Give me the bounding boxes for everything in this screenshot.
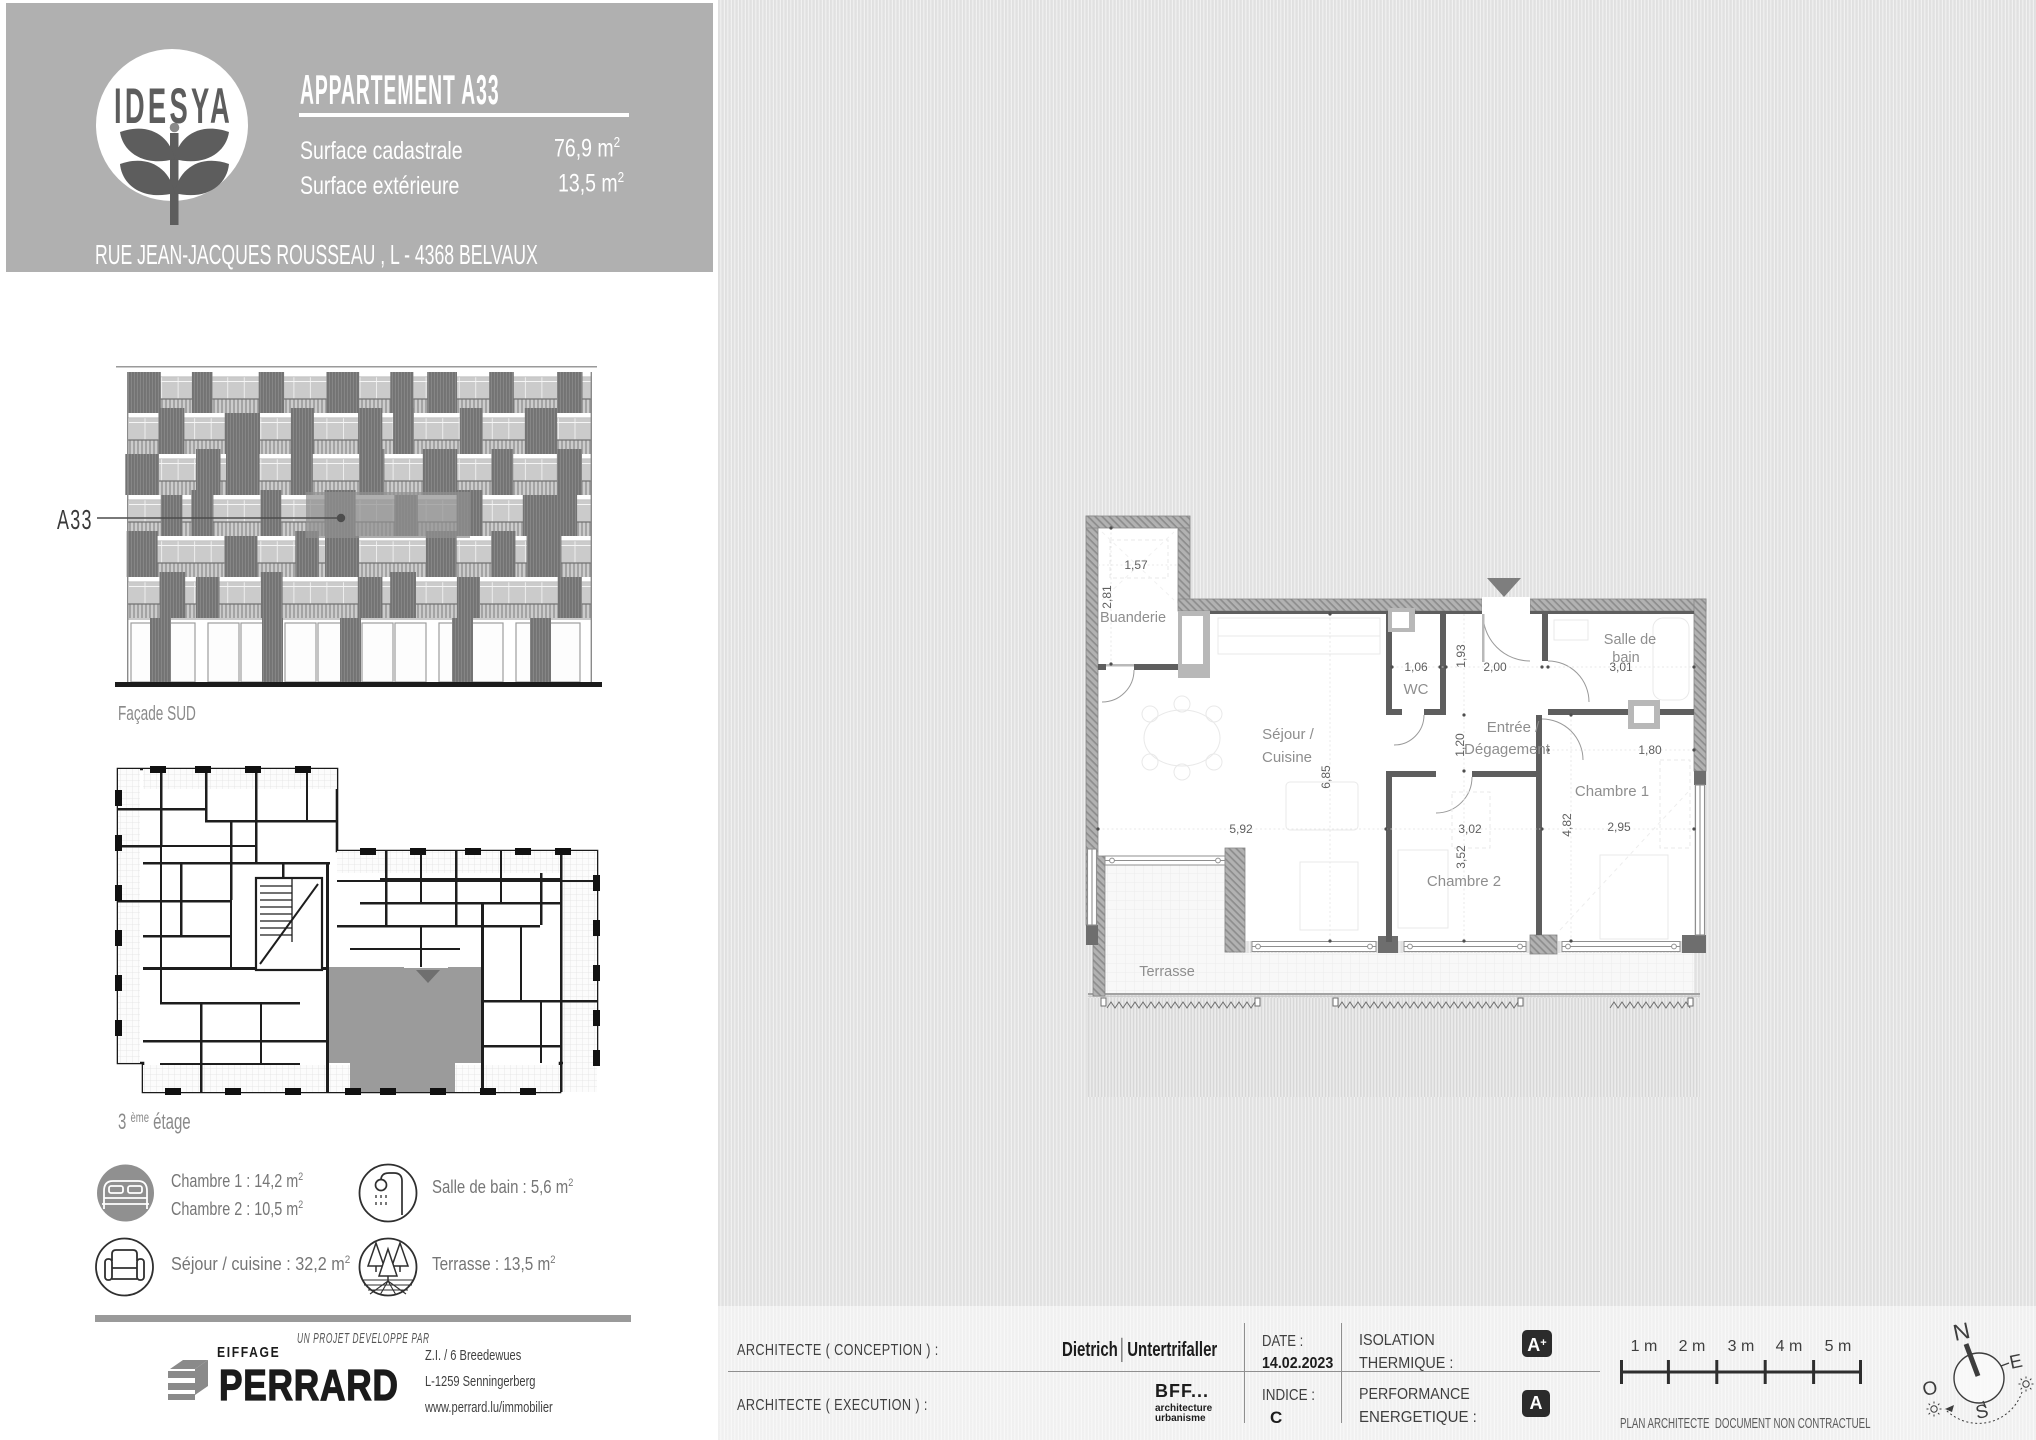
svg-text:5 m: 5 m	[1825, 1338, 1852, 1355]
svg-text:2 m: 2 m	[1679, 1338, 1706, 1355]
svg-text:O: O	[1921, 1377, 1940, 1401]
svg-text:S: S	[1974, 1401, 1991, 1424]
svg-text:4 m: 4 m	[1776, 1338, 1803, 1355]
svg-text:E: E	[2008, 1351, 2025, 1374]
svg-text:PLAN ARCHITECTE DOCUMENT NON: PLAN ARCHITECTE DOCUMENT NON CONTRACTUEL	[1620, 1415, 1871, 1431]
svg-text:1 m: 1 m	[1631, 1338, 1658, 1355]
svg-text:3 m: 3 m	[1728, 1338, 1755, 1355]
svg-text:N: N	[1951, 1317, 1973, 1346]
